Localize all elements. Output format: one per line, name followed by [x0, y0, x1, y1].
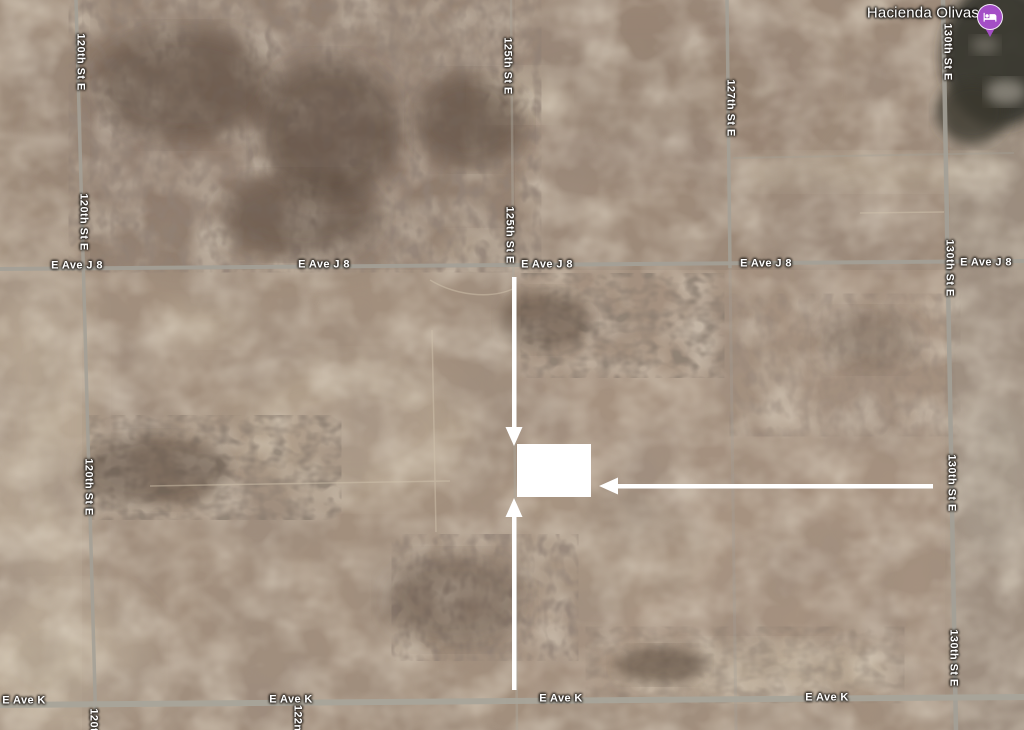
place-marker-hacienda-olivas[interactable] [977, 4, 1003, 30]
satellite-map-canvas[interactable]: 120th St E 120th St E 120th St E 120th S… [0, 0, 1024, 730]
marker-pin [977, 4, 1003, 30]
lodging-icon [983, 10, 997, 24]
parcel-highlight [517, 444, 591, 497]
satellite-terrain [0, 0, 1024, 730]
